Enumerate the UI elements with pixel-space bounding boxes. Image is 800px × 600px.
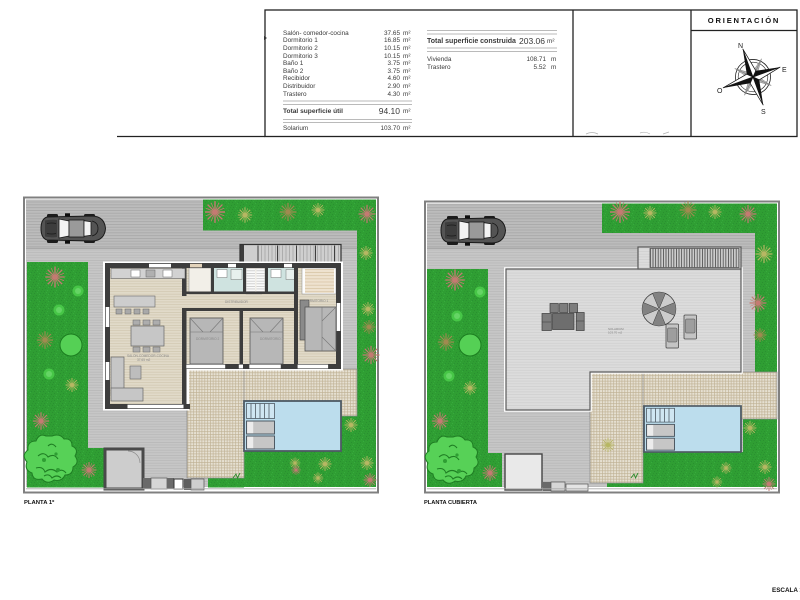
svg-text:103.70 m2: 103.70 m2 [608, 331, 623, 335]
svg-text:37.65 m2: 37.65 m2 [137, 358, 151, 362]
svg-text:DORMITORIO 2: DORMITORIO 2 [196, 337, 220, 341]
svg-text:O: O [717, 88, 723, 95]
svg-text:E: E [782, 67, 787, 74]
svg-text:N: N [738, 43, 743, 50]
svg-text:DORMITORIO 3: DORMITORIO 3 [260, 337, 284, 341]
svg-text:DORMITORIO 1: DORMITORIO 1 [305, 299, 329, 303]
svg-text:DISTRIBUIDOR: DISTRIBUIDOR [225, 300, 249, 304]
svg-text:S: S [761, 109, 766, 116]
